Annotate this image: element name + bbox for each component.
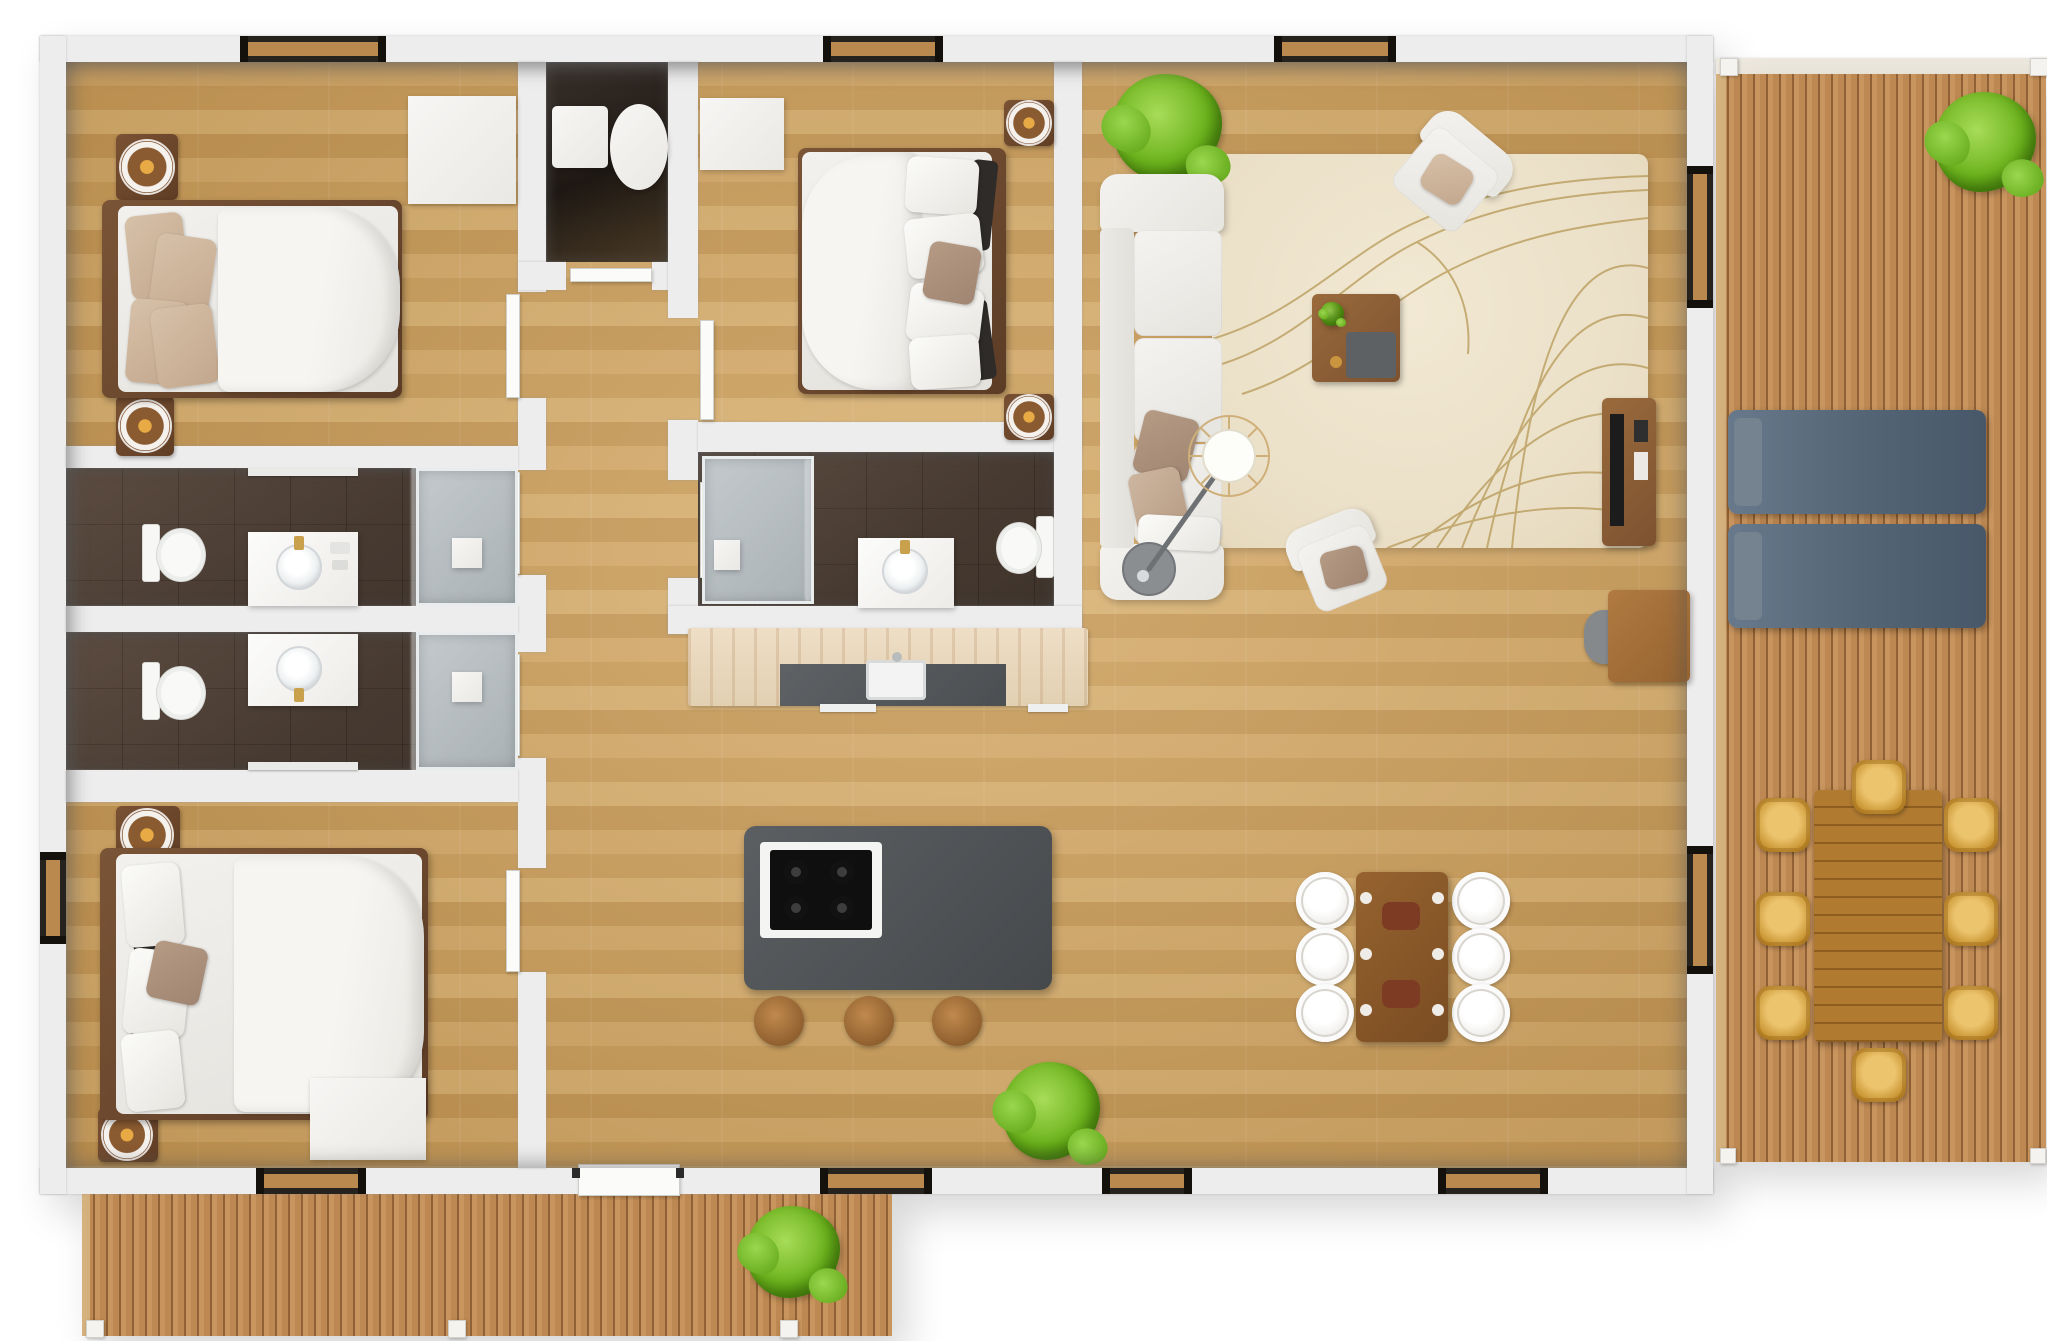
wicker-chair (1944, 892, 1998, 946)
nightstand (1004, 100, 1054, 146)
wall-hallway-west (518, 972, 546, 1168)
sofa-armrest (1100, 174, 1224, 232)
bar-stool (932, 996, 982, 1046)
window (820, 1168, 932, 1194)
coffee-table-tray (1346, 332, 1396, 378)
window (1274, 36, 1396, 62)
burner (830, 860, 854, 884)
wall-hallway-west (518, 62, 546, 292)
table-centerpiece (1382, 980, 1420, 1008)
wardrobe (700, 98, 784, 170)
wicker-chair (1944, 986, 1998, 1040)
bed-duvet (234, 856, 424, 1112)
window (240, 36, 386, 62)
table-lamp (120, 401, 170, 451)
place-setting (1360, 892, 1372, 904)
deck-edge-board (1716, 74, 1726, 1162)
faucet (294, 536, 304, 550)
burner (830, 896, 854, 920)
deck-post (1720, 1148, 1736, 1164)
nightstand (1004, 394, 1054, 440)
deck-top-beam (1716, 58, 2046, 74)
deck-post (2030, 58, 2047, 76)
dining-chair (1452, 928, 1510, 986)
bed-pillow (149, 303, 220, 390)
burner (784, 896, 808, 920)
potted-plant (1934, 92, 2036, 192)
door-bedroom1 (506, 294, 520, 398)
mirror (248, 468, 358, 476)
toilet-bowl (156, 528, 206, 582)
place-setting (1360, 1004, 1372, 1016)
wall-bedroom2-east (1054, 62, 1082, 634)
bed-pillow (904, 156, 980, 217)
sink (276, 544, 322, 590)
table-lamp (121, 141, 173, 193)
burner (784, 860, 808, 884)
rear-porch (82, 1194, 892, 1336)
sink (882, 548, 928, 594)
wall-closet-south (518, 262, 566, 290)
wall-hallway-west (518, 398, 546, 470)
mirror (248, 762, 358, 770)
sun-lounger (1728, 410, 1986, 514)
wall-hallway-west (518, 758, 546, 868)
dining-chair (1452, 872, 1510, 930)
wall-left (40, 36, 66, 1194)
wardrobe (310, 1078, 426, 1160)
shower-glass-panel (806, 460, 810, 600)
kitchen-sink (866, 660, 926, 700)
dining-chair (1296, 872, 1354, 930)
entry-door (578, 1164, 680, 1196)
deck-post (1720, 58, 1738, 76)
table-centerpiece (1382, 902, 1420, 930)
counter-foot (820, 704, 876, 712)
wall-hallway-west (518, 575, 546, 652)
dining-chair (1452, 984, 1510, 1042)
door-bedroom2 (700, 320, 714, 420)
table-lamp (1008, 102, 1050, 144)
porch-post (448, 1320, 466, 1338)
toilet-bowl (996, 522, 1042, 574)
lounger-pillow (1734, 418, 1762, 506)
washing-machine (552, 106, 608, 168)
place-setting (1432, 892, 1444, 904)
lounger-pillow (1734, 532, 1762, 620)
door-utility-closet (570, 268, 652, 282)
arc-floor-lamp (1096, 406, 1286, 606)
place-setting (1360, 948, 1372, 960)
entry-door-jamb (676, 1168, 684, 1178)
wicker-chair (1944, 798, 1998, 852)
porch-post (780, 1320, 798, 1338)
entry-door-jamb (572, 1168, 580, 1178)
water-heater (610, 104, 668, 190)
counter-foot (1028, 704, 1068, 712)
sofa-cushion (1134, 230, 1222, 336)
faucet (900, 540, 910, 554)
porch-edge-board (82, 1194, 90, 1336)
shower (416, 468, 518, 606)
wall-hallway-east (668, 420, 698, 480)
sun-lounger (1728, 524, 1986, 628)
bed-duvet (218, 206, 400, 392)
window (40, 852, 66, 944)
window (1102, 1168, 1192, 1194)
toilet-bowl (156, 666, 206, 720)
faucet (294, 688, 304, 702)
toiletries (332, 560, 348, 570)
window (256, 1168, 366, 1194)
bed-pillow (908, 334, 981, 391)
porch-post (86, 1320, 104, 1338)
shower-head (452, 672, 482, 702)
bed-pillow (120, 1029, 186, 1113)
sideboard-decor (1634, 420, 1648, 442)
tv (1610, 414, 1624, 526)
sink (276, 646, 322, 692)
decor-bowl (1330, 356, 1342, 368)
deck-post (2030, 1148, 2046, 1164)
wall-hallway-east (668, 62, 698, 318)
wicker-chair (1756, 892, 1810, 946)
outdoor-dining-table (1814, 790, 1942, 1042)
dining-chair (1296, 984, 1354, 1042)
potted-plant (746, 1206, 840, 1298)
dining-chair (1296, 928, 1354, 986)
window (1687, 166, 1713, 308)
shower-head (714, 540, 740, 570)
bed-duvet (802, 152, 920, 390)
potted-plant (1112, 74, 1222, 180)
wicker-chair (1756, 798, 1810, 852)
bar-stool (754, 996, 804, 1046)
shower (416, 632, 518, 770)
window (1687, 846, 1713, 974)
wall-bathrooms-mid (66, 606, 518, 632)
place-setting (1432, 1004, 1444, 1016)
door-bedroom3 (506, 870, 520, 972)
bed-pillow (121, 862, 186, 949)
sideboard-decor (1634, 452, 1648, 480)
floor-plan-render (0, 0, 2047, 1341)
place-setting (1432, 948, 1444, 960)
coffee-table-plant (1320, 302, 1344, 326)
bar-stool (844, 996, 894, 1046)
kitchen-faucet (892, 652, 902, 662)
wicker-chair (1852, 1048, 1906, 1102)
nightstand (116, 134, 178, 200)
wicker-chair (1852, 760, 1906, 814)
window (823, 36, 943, 62)
dresser (408, 96, 516, 204)
toiletries (330, 542, 350, 554)
window (1438, 1168, 1548, 1194)
shower-head (452, 538, 482, 568)
shower (702, 456, 814, 604)
wall-bedroom3-north (66, 770, 518, 802)
table-lamp (1008, 396, 1050, 438)
desk (1608, 590, 1690, 682)
potted-plant (1002, 1062, 1100, 1160)
cooktop (770, 850, 872, 930)
wicker-chair (1756, 986, 1810, 1040)
side-deck (1716, 58, 2046, 1162)
nightstand (116, 396, 174, 456)
accent-pillow (921, 240, 982, 306)
